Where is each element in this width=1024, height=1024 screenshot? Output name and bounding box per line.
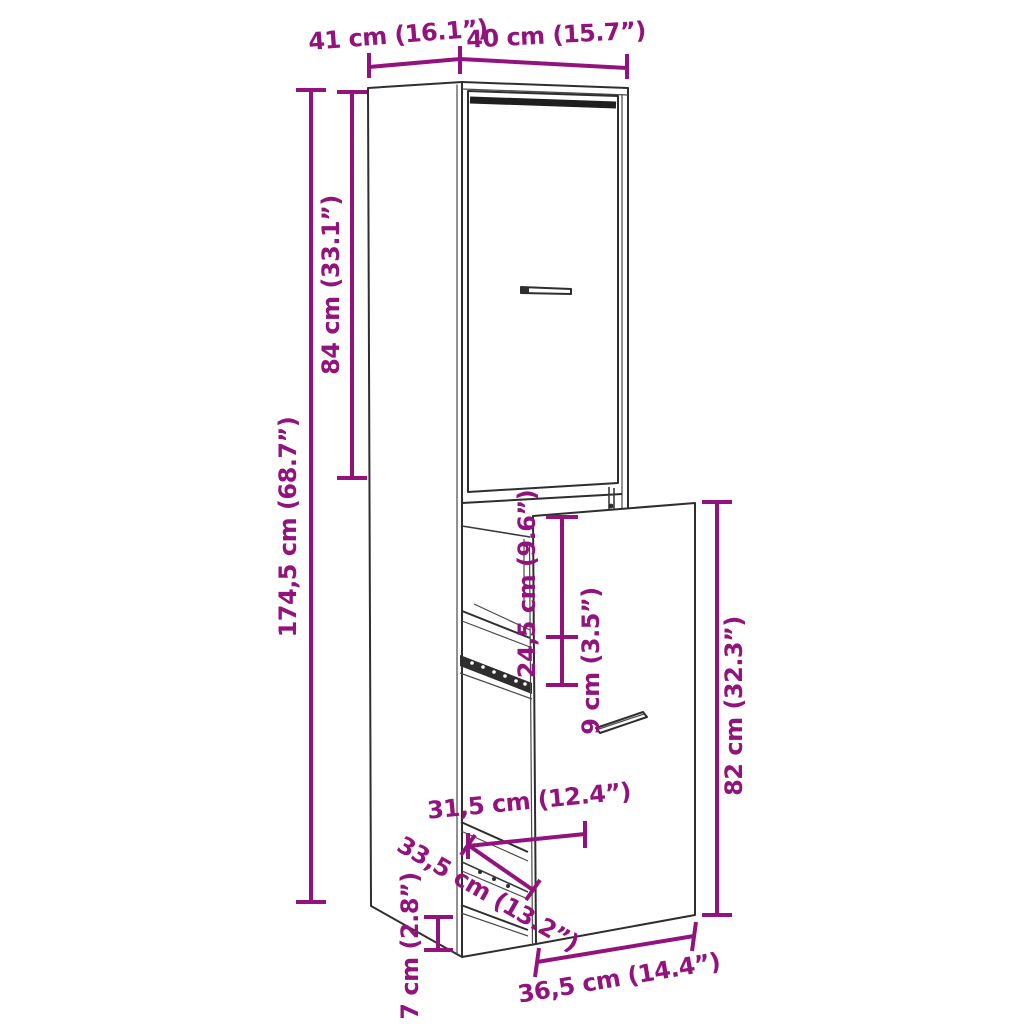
pull-out-drawer bbox=[530, 503, 696, 946]
dimension-shelf-spacing: 9 cm (3.5”) bbox=[577, 587, 605, 734]
dimension-label: 40 cm (15.7”) bbox=[465, 16, 646, 53]
dimension-label: 36,5 cm (14.4”) bbox=[516, 947, 722, 1008]
dimension-label: 9 cm (3.5”) bbox=[577, 587, 605, 734]
dimension-width-top: 40 cm (15.7”) bbox=[460, 16, 647, 79]
dimension-upper-door-height: 84 cm (33.1”) bbox=[317, 92, 367, 478]
upper-door-top-bar bbox=[470, 100, 616, 105]
product-dimension-diagram: 41 cm (16.1”) 40 cm (15.7”) 84 cm (33.1”… bbox=[0, 0, 1024, 1024]
carcass-bottom-edge bbox=[462, 944, 536, 957]
cabinet-front-frame bbox=[462, 82, 628, 508]
dimension-plinth-height: 7 cm (2.8”) bbox=[396, 872, 453, 1019]
mid-divider bbox=[462, 494, 622, 503]
dimension-drawer-front-height: 82 cm (32.3”) bbox=[702, 502, 748, 915]
cabinet-dimension-drawing: 41 cm (16.1”) 40 cm (15.7”) 84 cm (33.1”… bbox=[0, 0, 1024, 1024]
upper-door-handle bbox=[521, 287, 571, 294]
dimension-label: 7 cm (2.8”) bbox=[396, 872, 424, 1019]
cabinet-side-panel bbox=[368, 82, 462, 957]
dimension-label: 174,5 cm (68.7”) bbox=[274, 417, 302, 638]
dimension-label: 24,5 cm (9.6”) bbox=[513, 490, 541, 678]
dimension-label: 82 cm (32.3”) bbox=[720, 616, 748, 796]
dimension-label: 84 cm (33.1”) bbox=[317, 195, 345, 375]
dimension-depth-top: 41 cm (16.1”) bbox=[307, 14, 488, 78]
